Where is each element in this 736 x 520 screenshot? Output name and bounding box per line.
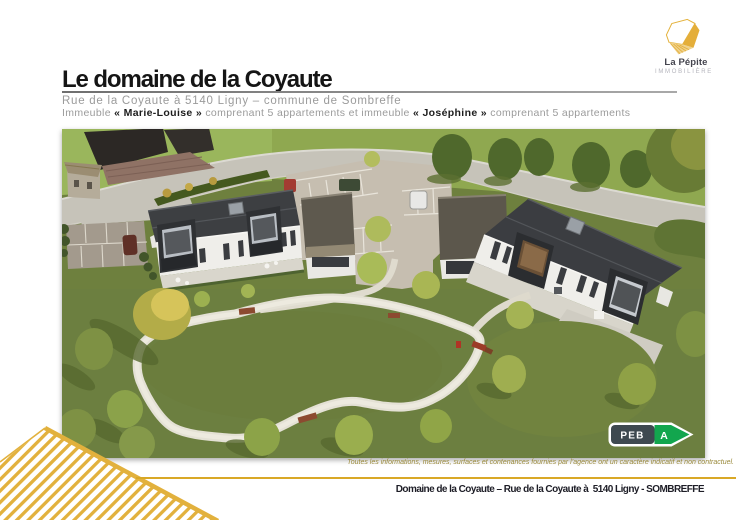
svg-text:PEB: PEB	[620, 431, 644, 442]
svg-text:A: A	[660, 430, 668, 442]
